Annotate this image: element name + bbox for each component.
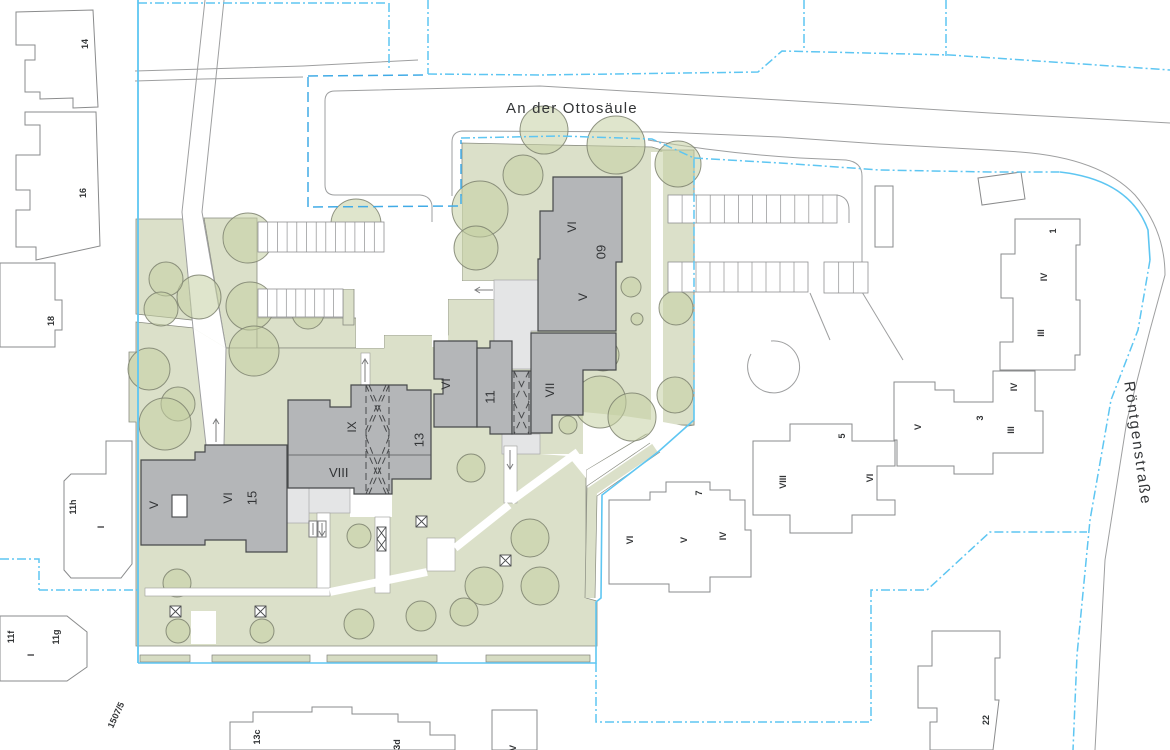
svg-text:An der Ottosäule: An der Ottosäule bbox=[506, 100, 638, 117]
svg-text:V: V bbox=[913, 424, 923, 430]
svg-text:3: 3 bbox=[975, 415, 985, 420]
svg-text:1: 1 bbox=[1048, 228, 1058, 233]
svg-text:09: 09 bbox=[594, 245, 609, 259]
svg-text:13d: 13d bbox=[392, 739, 402, 750]
svg-text:I: I bbox=[96, 526, 106, 529]
svg-text:7: 7 bbox=[694, 490, 704, 495]
svg-text:VI: VI bbox=[565, 221, 579, 232]
svg-text:IV: IV bbox=[1009, 383, 1019, 392]
svg-text:14: 14 bbox=[80, 39, 90, 49]
svg-text:13c: 13c bbox=[252, 729, 262, 744]
svg-text:VIII: VIII bbox=[329, 465, 349, 480]
svg-text:IX: IX bbox=[345, 421, 359, 432]
svg-text:11h: 11h bbox=[68, 499, 78, 514]
svg-text:13: 13 bbox=[412, 433, 427, 447]
svg-text:IV: IV bbox=[1039, 273, 1049, 282]
svg-text:VI: VI bbox=[221, 492, 235, 503]
svg-text:V: V bbox=[679, 537, 689, 543]
svg-text:VI: VI bbox=[439, 378, 453, 389]
svg-text:V: V bbox=[576, 293, 590, 301]
svg-text:I: I bbox=[26, 654, 36, 657]
svg-text:11: 11 bbox=[483, 390, 498, 404]
svg-text:V: V bbox=[508, 745, 518, 750]
svg-text:5: 5 bbox=[837, 433, 847, 438]
svg-text:VI: VI bbox=[625, 536, 635, 545]
svg-text:15: 15 bbox=[245, 491, 260, 505]
svg-text:VIII: VIII bbox=[778, 475, 788, 489]
svg-text:18: 18 bbox=[46, 316, 56, 326]
svg-text:III: III bbox=[1036, 329, 1046, 337]
svg-text:VII: VII bbox=[543, 383, 557, 398]
svg-text:III: III bbox=[1006, 426, 1016, 434]
svg-text:22: 22 bbox=[981, 715, 991, 725]
svg-text:11f: 11f bbox=[6, 630, 16, 644]
svg-text:11g: 11g bbox=[51, 629, 61, 644]
svg-text:IV: IV bbox=[718, 532, 728, 541]
svg-text:VI: VI bbox=[865, 474, 875, 483]
svg-text:V: V bbox=[147, 501, 161, 509]
svg-text:16: 16 bbox=[78, 188, 88, 198]
